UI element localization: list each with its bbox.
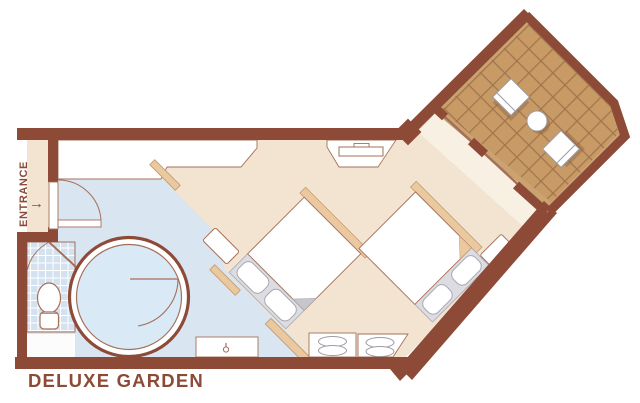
shower-pod bbox=[70, 238, 189, 357]
entrance-label: ENTRANCE bbox=[18, 149, 30, 239]
top-wall bbox=[17, 128, 403, 140]
toilet-room bbox=[27, 242, 76, 332]
left-wall bbox=[17, 232, 27, 367]
cushion bbox=[366, 347, 394, 357]
toilet-icon bbox=[38, 283, 61, 329]
vanity-counter bbox=[196, 337, 258, 357]
balcony-table bbox=[527, 111, 547, 131]
floor-plan-drawing bbox=[0, 0, 640, 403]
dresser-1 bbox=[309, 333, 356, 357]
bottom-wall bbox=[15, 357, 415, 369]
cushion bbox=[319, 346, 347, 356]
entry-wall bbox=[48, 140, 58, 182]
bathroom-lobby-floor bbox=[27, 334, 75, 357]
entrance-arrow-icon: → bbox=[29, 195, 44, 212]
door-leaf bbox=[58, 220, 101, 227]
floor-plan: ENTRANCE → DELUXE GARDEN bbox=[0, 0, 640, 403]
page-title: DELUXE GARDEN bbox=[28, 370, 204, 392]
